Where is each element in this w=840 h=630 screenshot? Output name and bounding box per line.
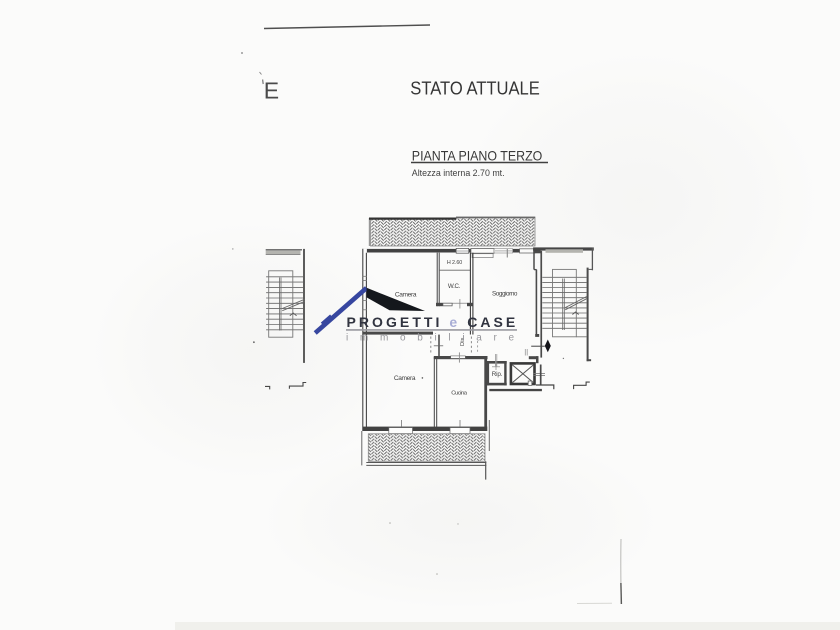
svg-text:W.C.: W.C. <box>448 283 461 290</box>
svg-text:E: E <box>264 78 279 104</box>
svg-text:H 2.60: H 2.60 <box>447 260 462 266</box>
svg-text:Rip.: Rip. <box>492 371 503 378</box>
svg-text:Camera: Camera <box>395 292 417 299</box>
svg-text:Cucina: Cucina <box>451 390 468 396</box>
